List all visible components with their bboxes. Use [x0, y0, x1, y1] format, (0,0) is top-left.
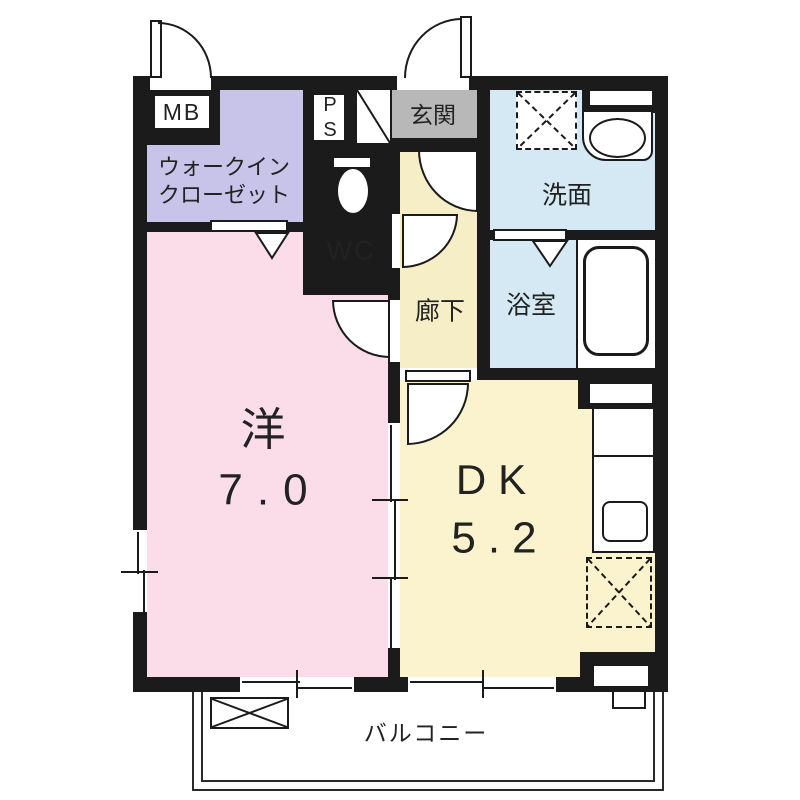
- western-room-size: 7.0: [218, 466, 321, 517]
- western-door-leaf: [390, 300, 400, 362]
- washroom-label: 洗面: [542, 182, 592, 211]
- left-window-tick: [121, 571, 158, 573]
- washroom-shelf-slot: [590, 91, 652, 105]
- washing-machine-space: [516, 91, 577, 150]
- dk-label: DK: [456, 456, 538, 504]
- entrance-exterior-door-arc: [404, 18, 462, 78]
- hallway-label: 廊下: [415, 298, 465, 327]
- refrigerator-space: [586, 557, 652, 628]
- balcony-utility-box: [210, 697, 289, 729]
- bottom-right-inset: [592, 664, 650, 688]
- west-window-pane: [242, 681, 300, 683]
- vanity-basin-icon: [589, 118, 646, 158]
- dk-door-bar: [405, 370, 471, 382]
- bathroom-label: 浴室: [506, 292, 556, 321]
- shoe-cabinet: [355, 88, 392, 145]
- balcony-notch: [612, 690, 646, 709]
- kitchen-counter-divider: [592, 455, 655, 457]
- wall-right: [655, 76, 668, 692]
- wall-bath-tub-divider: [576, 240, 578, 368]
- entrance-door-threshold: [397, 76, 469, 90]
- entrance-label: 玄関: [410, 102, 456, 128]
- dk-size: 5.2: [451, 514, 548, 565]
- wc-label: WC: [327, 235, 376, 266]
- bathtub-icon: [583, 246, 649, 356]
- sliding-door-panel: [390, 425, 392, 502]
- left-window-pane: [143, 570, 145, 612]
- wic-label: ウォークインクローゼット: [158, 99, 290, 264]
- sliding-door-panel: [394, 500, 396, 580]
- dk-window-pane: [410, 681, 484, 683]
- left-window-pane: [137, 532, 139, 574]
- mb-exterior-door-arc: [158, 22, 212, 78]
- pipe-space-label: PS: [319, 43, 341, 193]
- sliding-door-tick: [372, 577, 408, 579]
- west-window-pane: [296, 687, 352, 689]
- kitchen-range-box: [588, 382, 654, 405]
- mb-door-threshold: [150, 76, 211, 90]
- wc-door-leaf: [392, 214, 400, 268]
- sliding-door-tick: [372, 499, 408, 501]
- western-room-label: 洋: [240, 404, 285, 456]
- floor-plan: MB PS 玄関 洗面 ウォークインクローゼット WC 廊下 浴室 洋 7.0 …: [0, 0, 800, 800]
- bathroom-door-bar: [493, 229, 567, 241]
- balcony-label: バルコニー: [364, 720, 489, 746]
- sliding-door-panel: [390, 578, 392, 648]
- kitchen-sink-icon: [602, 501, 648, 542]
- dk-window-pane: [484, 687, 554, 689]
